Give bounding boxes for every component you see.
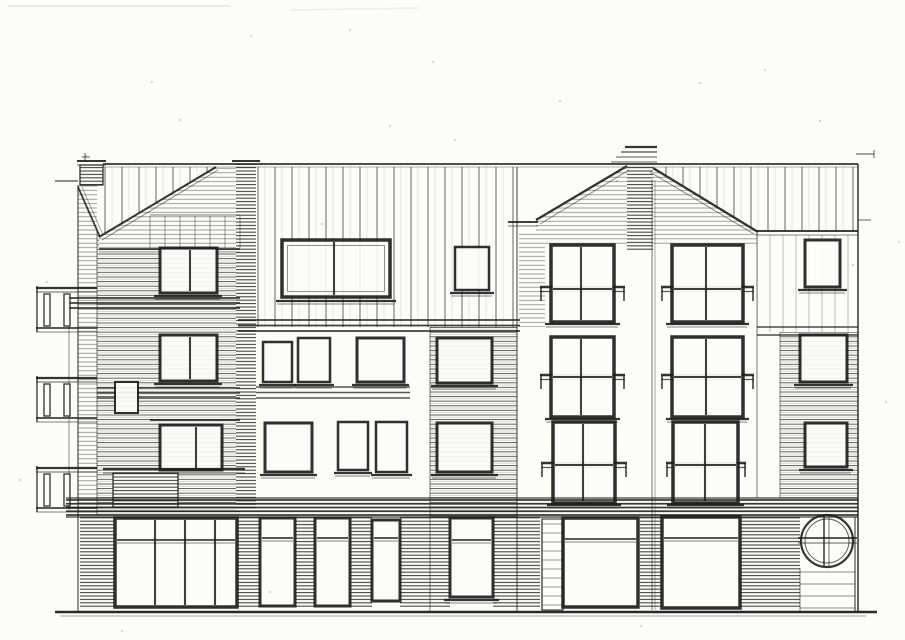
ground-pier <box>762 517 800 609</box>
side-balcony-2-post <box>64 384 70 416</box>
side-balcony-1-post <box>44 294 50 326</box>
scan-speckles <box>559 100 561 102</box>
scan-speckles <box>454 139 456 141</box>
scan-speckles <box>179 119 181 121</box>
corner-pier-siding <box>236 164 256 510</box>
scanned-elevation-page <box>0 0 905 640</box>
scan-speckles <box>852 264 854 266</box>
scan-speckles <box>121 630 123 632</box>
gable-window-b1 <box>672 245 743 322</box>
scan-speckles <box>885 401 887 403</box>
chimney-left-body <box>80 165 103 185</box>
ground-pier-ladder <box>542 519 563 610</box>
entrance-door-2 <box>315 518 350 606</box>
ground-pier <box>640 517 662 609</box>
right-bay-white-strip <box>757 332 780 498</box>
ground-pier <box>400 517 450 607</box>
mansard-small-window <box>455 247 489 290</box>
gable-window-a1 <box>551 245 614 322</box>
ground-pier <box>295 517 315 607</box>
center-window-a1 <box>263 342 292 382</box>
center-window-b1 <box>265 423 312 472</box>
scan-speckles <box>321 223 323 225</box>
right-roof-window <box>805 240 840 287</box>
side-balcony-1-post <box>64 294 70 326</box>
scan-speckles <box>250 35 252 37</box>
side-balcony-3-post <box>64 474 70 506</box>
center-window-a2 <box>298 338 330 382</box>
right-window-1 <box>800 335 847 382</box>
left-window-2 <box>160 335 217 381</box>
ground-pier <box>740 517 762 609</box>
scan-speckles <box>764 69 766 71</box>
ground-window-2 <box>450 518 493 597</box>
gable-left-margin-siding <box>519 232 545 327</box>
scan-speckles <box>269 591 271 593</box>
scan-speckles <box>640 625 642 627</box>
scan-speckles <box>46 281 48 283</box>
shopfront-window-1 <box>115 518 237 607</box>
ground-pier <box>350 517 372 607</box>
scan-speckles <box>19 479 21 481</box>
side-balcony-3-post <box>44 474 50 506</box>
scan-speckles <box>819 120 821 122</box>
scan-speckles <box>699 82 701 84</box>
ground-window-1 <box>372 520 400 601</box>
scan-speckles <box>85 155 87 157</box>
left-window-3 <box>160 425 222 470</box>
band-bay-window-2 <box>437 423 492 472</box>
center-window-b3 <box>376 422 407 472</box>
scan-speckles <box>389 125 391 127</box>
shopfront-window-2 <box>563 518 638 607</box>
scan-speckles <box>349 29 351 31</box>
scan-speckles <box>616 180 618 182</box>
entrance-door-1 <box>260 518 295 606</box>
side-balcony-2-post <box>44 384 50 416</box>
mansard-double-window <box>282 240 390 297</box>
gable-chimney-shaft <box>627 165 653 250</box>
elevation-drawing <box>0 0 905 640</box>
center-window-a3 <box>357 338 404 382</box>
balcony-parapet-box <box>113 473 178 507</box>
scan-speckles <box>151 81 153 83</box>
ground-pier <box>237 517 260 608</box>
scan-speckles <box>898 241 900 243</box>
center-window-b2 <box>338 422 368 470</box>
left-side-bay-siding <box>78 185 97 515</box>
shopfront-window-3 <box>662 517 740 608</box>
right-window-2 <box>805 423 847 467</box>
scan-speckles <box>432 61 434 63</box>
band-bay-window-1 <box>437 338 492 383</box>
left-window-1 <box>160 248 217 293</box>
left-small-window <box>115 382 138 413</box>
ground-pier <box>80 517 115 609</box>
